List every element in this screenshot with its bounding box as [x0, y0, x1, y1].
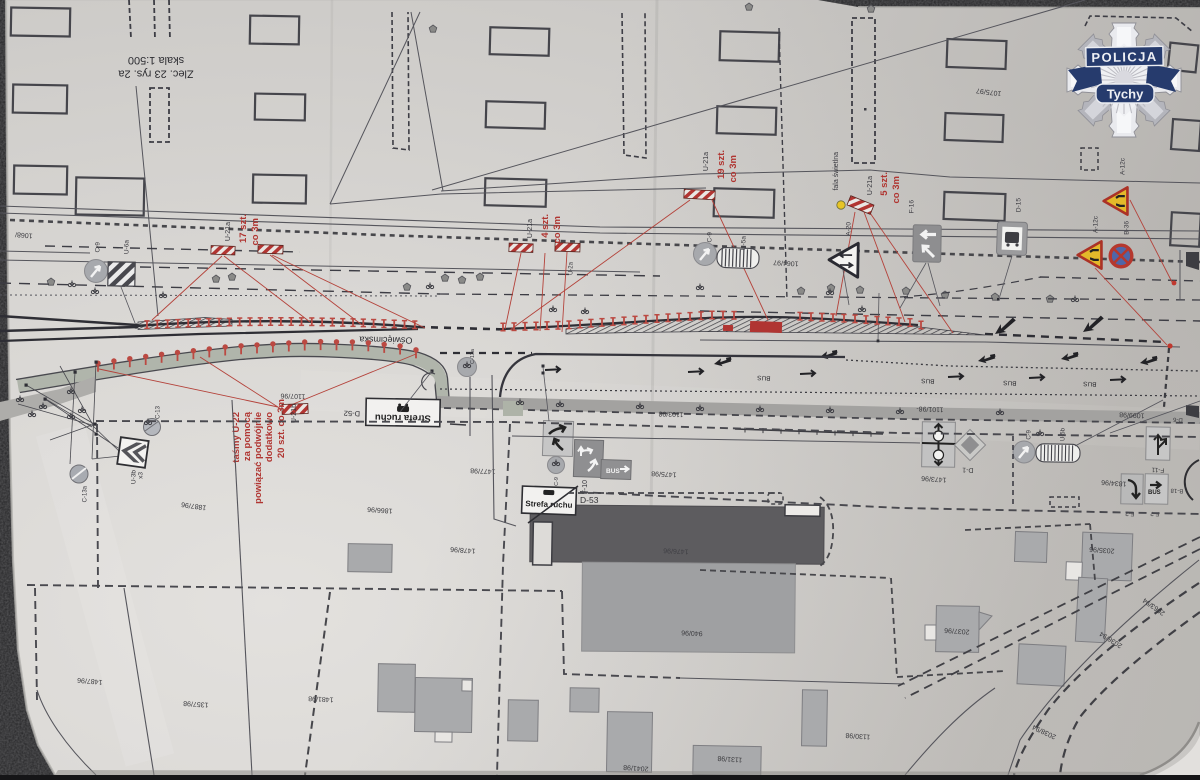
svg-text:C-13a: C-13a — [470, 348, 476, 364]
svg-text:x3: x3 — [138, 472, 145, 479]
svg-text:1476/96: 1476/96 — [663, 546, 689, 554]
svg-text:17 szt.: 17 szt. — [238, 214, 249, 243]
svg-text:D-53: D-53 — [580, 495, 599, 505]
svg-text:1107/96: 1107/96 — [280, 392, 305, 400]
svg-text:1099/98: 1099/98 — [1119, 410, 1145, 418]
svg-text:taśmy U-22: taśmy U-22 — [231, 412, 242, 463]
svg-text:19 szt.: 19 szt. — [716, 150, 727, 179]
svg-text:U-6a: U-6a — [124, 240, 131, 254]
svg-text:1477/98: 1477/98 — [470, 466, 496, 474]
svg-text:U-21a: U-21a — [703, 152, 710, 171]
svg-text:POLICJA: POLICJA — [1091, 49, 1157, 65]
svg-text:5 szt.: 5 szt. — [879, 172, 890, 196]
svg-text:F-16: F-16 — [909, 200, 916, 214]
svg-text:BUS: BUS — [920, 377, 934, 385]
svg-text:20 szt. co 3m: 20 szt. co 3m — [276, 399, 287, 458]
svg-text:4 szt.: 4 szt. — [540, 214, 551, 238]
svg-text:U-2a: U-2a — [568, 261, 574, 275]
svg-text:C-9: C-9 — [95, 242, 102, 253]
svg-text:skala 1:500: skala 1:500 — [128, 54, 184, 66]
svg-text:U-3b: U-3b — [131, 470, 138, 484]
svg-text:co 3m: co 3m — [891, 176, 902, 203]
svg-text:Zlec. 23 rys. 2a: Zlec. 23 rys. 2a — [118, 68, 194, 80]
svg-text:940/96: 940/96 — [681, 628, 703, 636]
svg-text:U-21b: U-21b — [291, 404, 298, 423]
svg-text:U-5a: U-5a — [741, 236, 748, 250]
svg-text:A-20: A-20 — [846, 222, 853, 236]
svg-text:C-13: C-13 — [155, 405, 161, 419]
svg-text:C-13a: C-13a — [82, 485, 88, 502]
svg-text:D-1: D-1 — [962, 466, 974, 474]
svg-text:BUS: BUS — [1002, 379, 1016, 387]
svg-text:1103/98: 1103/98 — [658, 410, 683, 418]
svg-text:U-21a: U-21a — [527, 219, 534, 238]
svg-text:A-12c: A-12c — [1093, 215, 1100, 233]
svg-text:U-21a: U-21a — [225, 222, 232, 241]
svg-text:F-11: F-11 — [1151, 466, 1165, 474]
svg-text:BUS: BUS — [756, 374, 770, 382]
svg-text:BUS: BUS — [1148, 490, 1161, 496]
svg-text:U-5b: U-5b — [1060, 427, 1066, 441]
svg-text:1481/98: 1481/98 — [308, 694, 334, 702]
svg-text:D-15: D-15 — [1016, 198, 1023, 212]
svg-text:fala świetlna: fala świetlna — [833, 152, 840, 191]
svg-text:BUS: BUS — [606, 468, 620, 475]
svg-text:B-36: B-36 — [1124, 221, 1131, 235]
svg-text:BUS: BUS — [1082, 380, 1096, 388]
svg-text:A-12c: A-12c — [1120, 157, 1127, 175]
svg-text:C-9: C-9 — [554, 477, 560, 486]
svg-text:Tychy: Tychy — [1107, 87, 1144, 102]
svg-text:C-9: C-9 — [1026, 429, 1032, 439]
svg-text:B-18: B-18 — [1170, 487, 1184, 494]
svg-text:1475/98: 1475/98 — [651, 469, 677, 477]
svg-text:1101/98-: 1101/98- — [916, 405, 944, 413]
svg-text:za pomocą: za pomocą — [242, 411, 253, 461]
svg-text:D-6: D-6 — [1172, 416, 1183, 423]
svg-text:co 3m: co 3m — [728, 155, 739, 182]
svg-text:powiązać podwójnie: powiązać podwójnie — [253, 412, 264, 504]
svg-text:U-21a: U-21a — [867, 176, 874, 195]
svg-text:co 3m: co 3m — [552, 216, 563, 243]
svg-text:co 3m: co 3m — [250, 218, 261, 245]
svg-text:dodatkowo: dodatkowo — [264, 412, 275, 462]
svg-text:C-9: C-9 — [707, 232, 714, 243]
svg-text:1064/97: 1064/97 — [773, 258, 799, 266]
svg-text:D-52: D-52 — [344, 409, 361, 419]
